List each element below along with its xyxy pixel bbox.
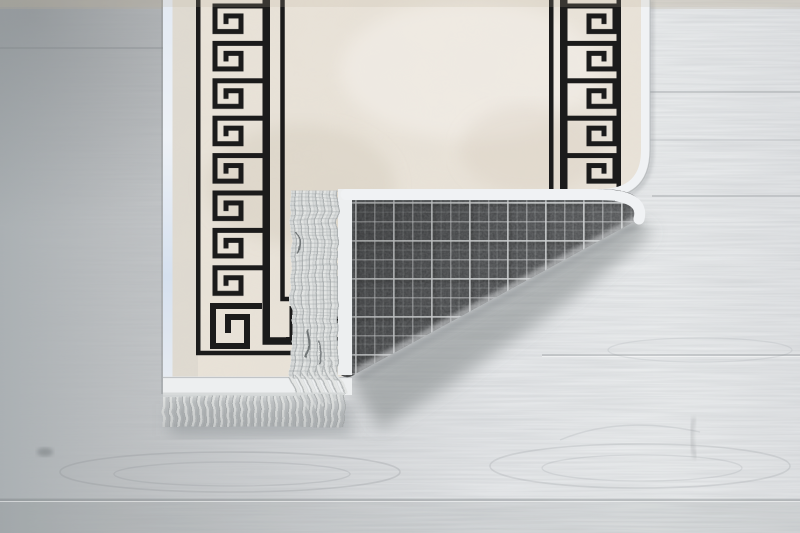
bottom-fringe	[163, 393, 345, 427]
meander-band-left	[206, 0, 270, 299]
rug-scene	[0, 0, 800, 533]
product-photo	[0, 0, 800, 533]
flap-left-binding	[338, 189, 352, 375]
wood-knot	[37, 448, 53, 457]
rug-left-binding	[163, 0, 173, 395]
top-light-tint	[0, 0, 800, 7]
bottom-fringe-strands-group	[163, 396, 345, 426]
bottom-fringe-tip-shade	[163, 396, 345, 426]
meander-band-right	[560, 0, 624, 195]
floor-bottom-plank-shade	[0, 498, 800, 533]
greek-key-border-right	[551, 0, 624, 195]
fringe-column-ripples	[291, 190, 338, 380]
field-left-margin-shade	[172, 0, 198, 395]
